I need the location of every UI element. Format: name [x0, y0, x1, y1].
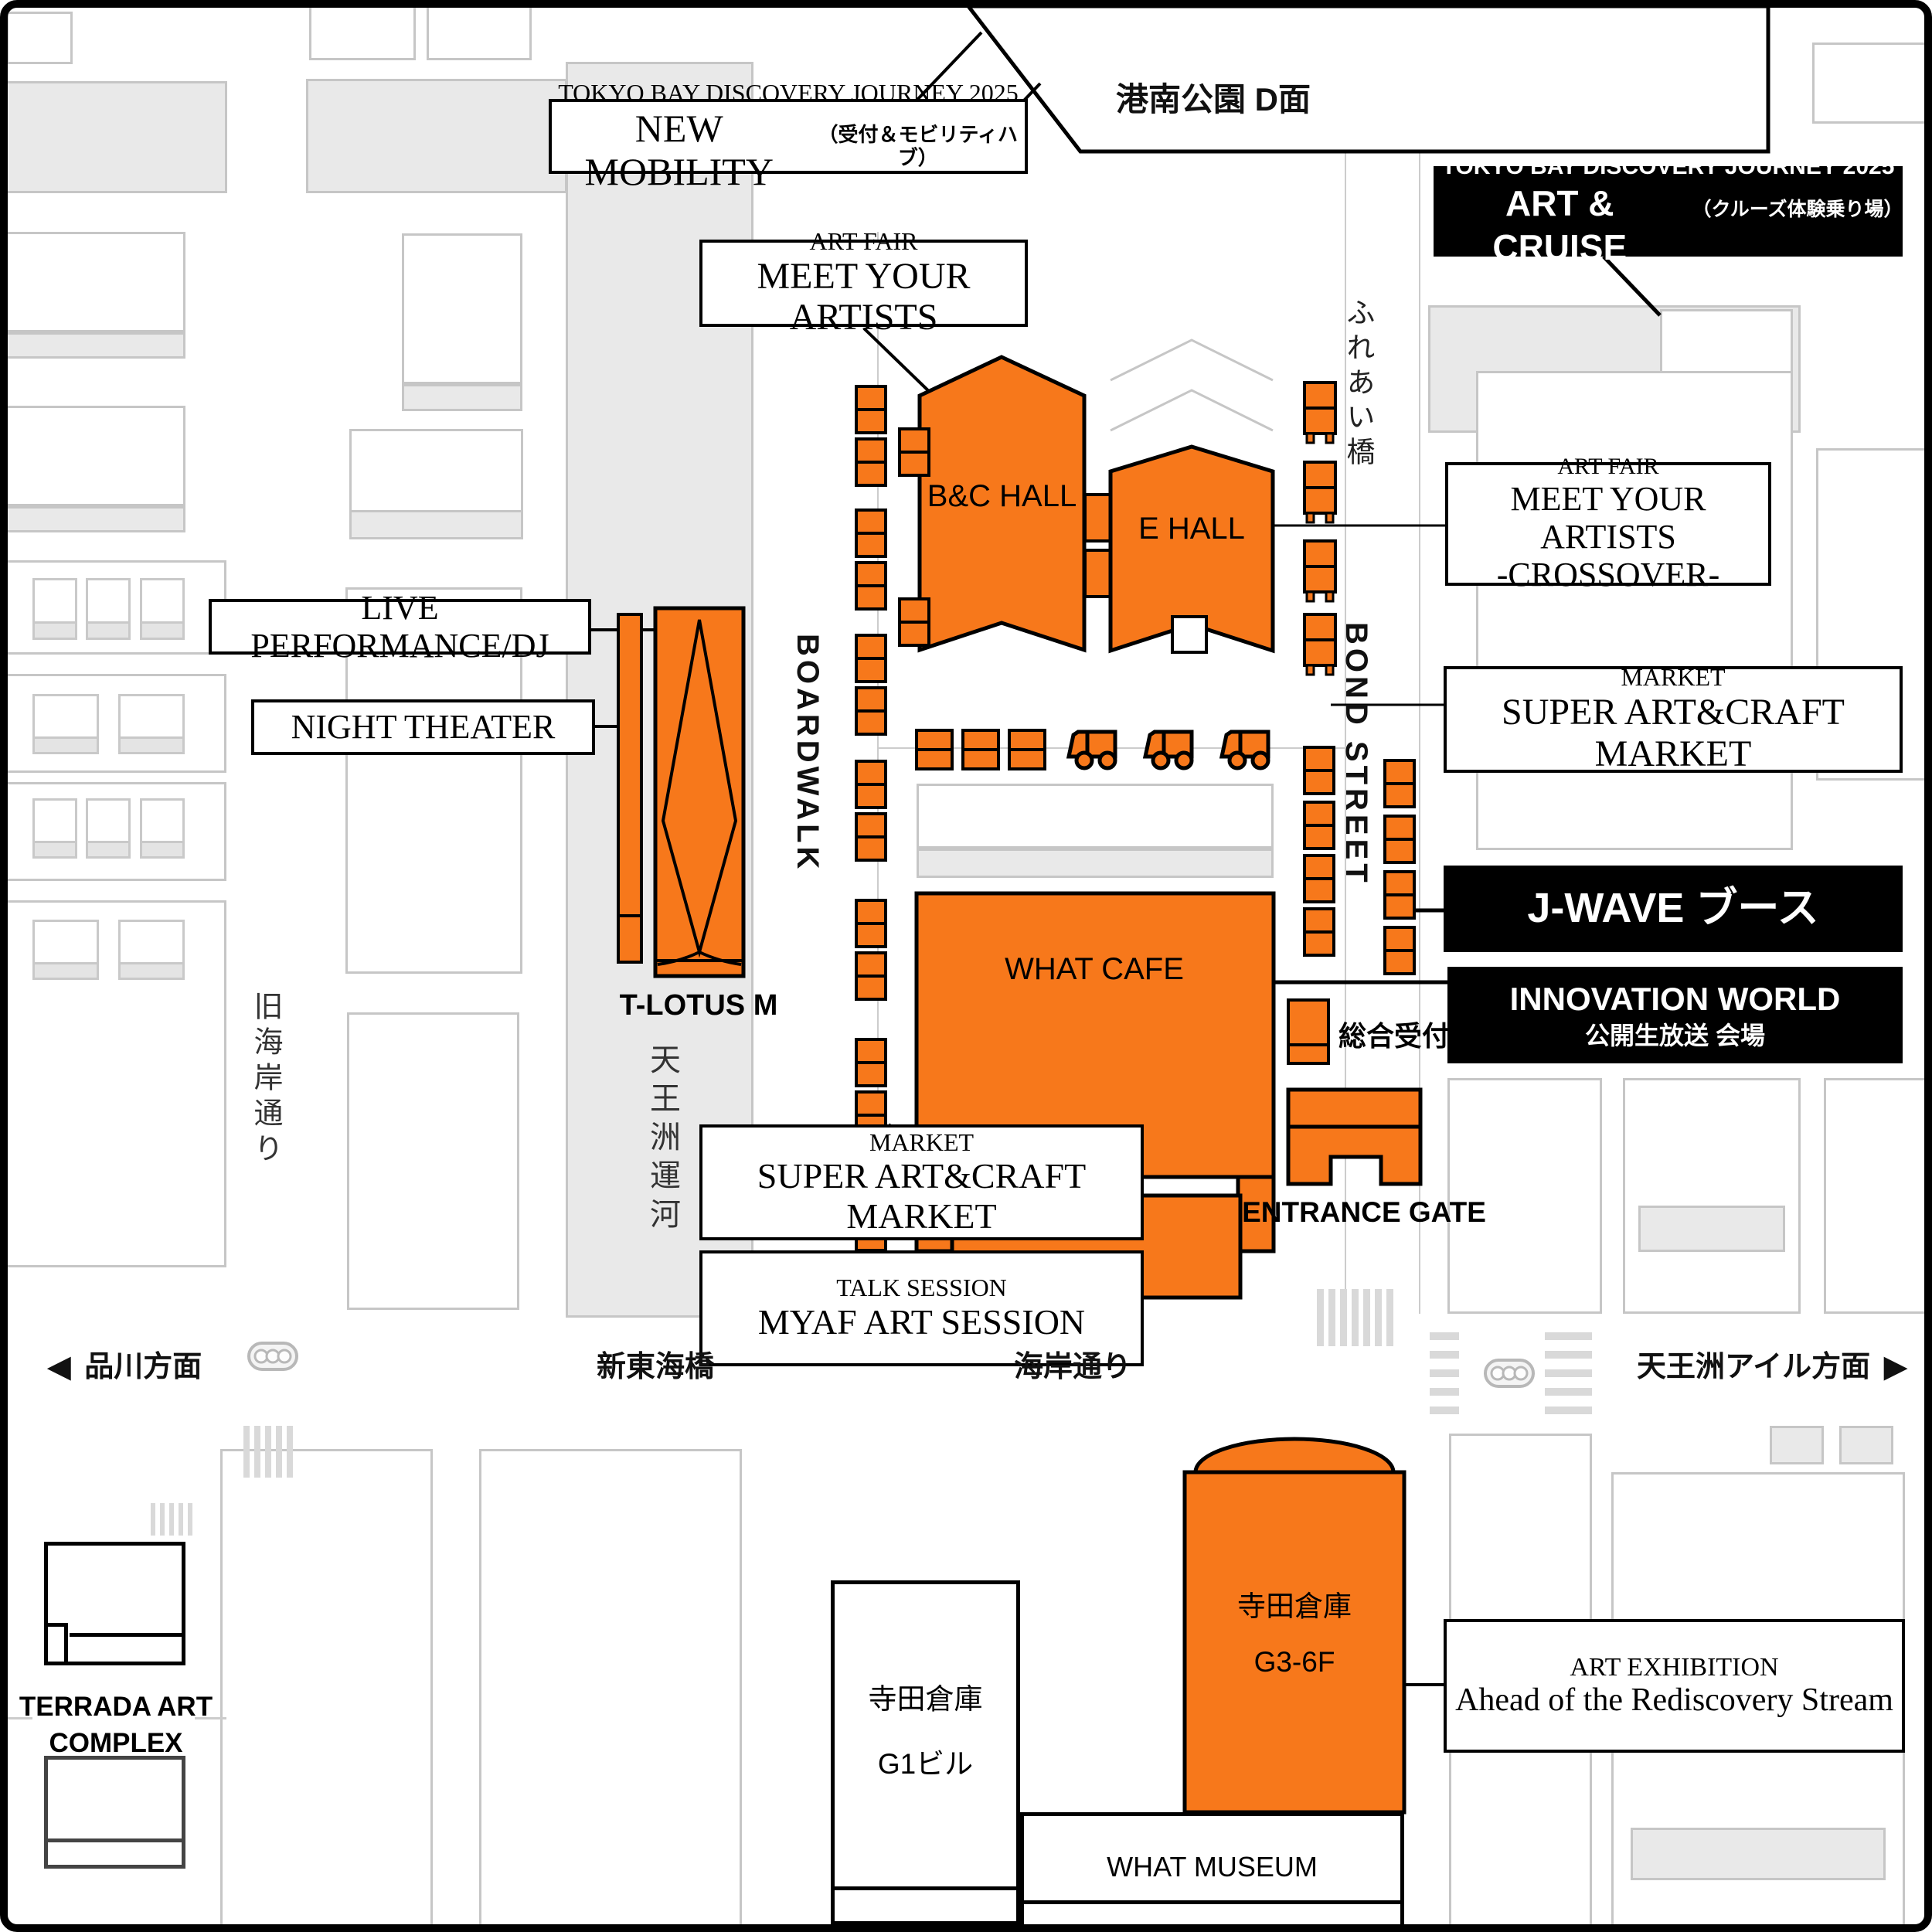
art-fair-label: ART FAIR MEET YOUR ARTISTS [699, 240, 1028, 327]
crossover-label: ART FAIR MEET YOUR ARTISTS -CROSSOVER- [1445, 462, 1771, 586]
terrada-building-south [44, 1756, 185, 1869]
terrada-building-annex [44, 1623, 68, 1665]
label-category: ART EXHIBITION [1570, 1653, 1778, 1682]
label-sub: （受付＆モビリティハブ） [811, 124, 1025, 168]
building-line [831, 1921, 1020, 1925]
kyu-kaigan-dori-label: 旧海岸通り [244, 991, 287, 1168]
tennozu-canal-label: 天王洲運河 [640, 1043, 685, 1236]
event-area-map: TOKYO BAY DISCOVERY JOURNEY 2025 NEW MOB… [0, 0, 1932, 1932]
konan-park-label: 港南公園 D面 [1051, 73, 1376, 121]
label-category: MARKET [1621, 664, 1725, 692]
entrance-gate-label: ENTRANCE GATE [1256, 1196, 1472, 1229]
shin-tokai-bridge-label: 新東海橋 [597, 1342, 714, 1385]
fureai-bridge-label: ふれあい橋 [1337, 298, 1379, 471]
e-hall-entrance-notch [1172, 617, 1206, 652]
terrada-line1: TERRADA ART [19, 1689, 213, 1725]
label-name: ART & CRUISE [1434, 182, 1686, 270]
what-cafe-label: WHAT CAFE [994, 952, 1195, 987]
e-hall-label: E HALL [1111, 512, 1273, 546]
hall-connector [1085, 550, 1111, 597]
reception-booth [1288, 1000, 1328, 1063]
traffic-light [1485, 1360, 1533, 1386]
label-name: LIVE PERFORMANCE/DJ [212, 589, 588, 665]
label-category: ART FAIR [1557, 454, 1658, 480]
label-name: SUPER ART&CRAFT MARKET [702, 1156, 1141, 1236]
kaigan-dori-label: 海岸通り [1014, 1342, 1131, 1385]
label-name: MYAF ART SESSION [758, 1302, 1085, 1342]
to-shinagawa-text: 品川方面 [84, 1342, 202, 1385]
art-cruise-label: TOKYO BAY DISCOVERY JOURNEY 2025 ART & C… [1434, 166, 1903, 257]
market-row-booths [917, 730, 1045, 769]
jwave-booth-label: J-WAVE ブース [1444, 866, 1903, 952]
new-mobility-label: TOKYO BAY DISCOVERY JOURNEY 2025 NEW MOB… [549, 99, 1028, 174]
roof-outline [1111, 340, 1273, 380]
terada-g1-label: 寺田倉庫 G1ビル [831, 1675, 1020, 1782]
t-lotus-pier [618, 614, 641, 962]
market-bottom-label: MARKET SUPER ART&CRAFT MARKET [699, 1124, 1144, 1240]
night-theater-label: NIGHT THEATER [251, 699, 595, 755]
to-tennozu-isle-text: 天王洲アイル方面 [1637, 1342, 1870, 1385]
t-lotus-label: T-LOTUS M [609, 989, 788, 1022]
label-line1: INNOVATION WORLD [1510, 979, 1841, 1020]
art-exhibition-label: ART EXHIBITION Ahead of the Rediscovery … [1444, 1619, 1905, 1753]
building-line [831, 1886, 1020, 1890]
to-tennozu-isle-label: 天王洲アイル方面 ▶ [1637, 1342, 1906, 1385]
innovation-world-label: INNOVATION WORLD 公開生放送 会場 [1447, 967, 1903, 1063]
building-line [1020, 1900, 1404, 1904]
bond-street-booths-west [1304, 747, 1334, 955]
terrada-art-complex-label: TERRADA ART COMPLEX [23, 1689, 209, 1762]
label-category: ART FAIR [809, 228, 917, 256]
label-title: TOKYO BAY DISCOVERY JOURNEY 2025 [1442, 152, 1895, 182]
hall-connector [1085, 495, 1111, 541]
right-arrow-icon: ▶ [1884, 1349, 1906, 1384]
label-category: TALK SESSION [836, 1274, 1007, 1302]
label-name: MEET YOUR ARTISTS [1448, 480, 1768, 556]
to-shinagawa-label: ◀ 品川方面 [48, 1342, 202, 1385]
roof-outline [1111, 390, 1273, 430]
bond-street-label: BOND STREET [1338, 622, 1373, 886]
what-museum-label: WHAT MUSEUM [1020, 1851, 1404, 1883]
label-category: MARKET [869, 1129, 974, 1157]
terada-g3-line2: G3-6F [1254, 1646, 1335, 1679]
food-trucks [1069, 732, 1268, 768]
label-name: Ahead of the Rediscovery Stream [1455, 1682, 1893, 1719]
terada-g3-label: 寺田倉庫 G3-6F [1185, 1583, 1404, 1679]
label-line2: 公開生放送 会場 [1585, 1020, 1765, 1051]
terada-g1-line1: 寺田倉庫 [869, 1675, 983, 1717]
building-line [44, 1838, 185, 1842]
reception-label: 総合受付 [1338, 1014, 1450, 1054]
left-arrow-icon: ◀ [48, 1349, 70, 1384]
market-right-label: MARKET SUPER ART&CRAFT MARKET [1444, 666, 1903, 773]
bond-street-stalls [1304, 383, 1335, 675]
live-dj-label: LIVE PERFORMANCE/DJ [209, 599, 591, 655]
label-name: MEET YOUR ARTISTS [702, 256, 1025, 339]
label-sub: （クルーズ体験乗り場） [1692, 198, 1903, 222]
label-name: NEW MOBILITY [552, 107, 806, 193]
terada-g3-line1: 寺田倉庫 [1237, 1583, 1352, 1624]
terada-g1-line2: G1ビル [878, 1740, 973, 1782]
label-title: TOKYO BAY DISCOVERY JOURNEY 2025 [558, 80, 1019, 107]
terada-g3-dome [1196, 1439, 1393, 1472]
entrance-gate-structure [1288, 1090, 1420, 1184]
bond-street-booths-east [1385, 760, 1414, 974]
label-name: SUPER ART&CRAFT MARKET [1447, 692, 1900, 775]
label-name: J-WAVE ブース [1527, 883, 1818, 935]
terrada-line2: COMPLEX [49, 1725, 182, 1761]
building-line [70, 1633, 185, 1637]
traffic-light [249, 1343, 297, 1369]
boardwalk-label: BOARDWALK [790, 634, 825, 872]
label-name: NIGHT THEATER [291, 708, 556, 746]
bc-hall-label: B&C HALL [920, 479, 1084, 514]
label-sub: -CROSSOVER- [1497, 556, 1720, 594]
